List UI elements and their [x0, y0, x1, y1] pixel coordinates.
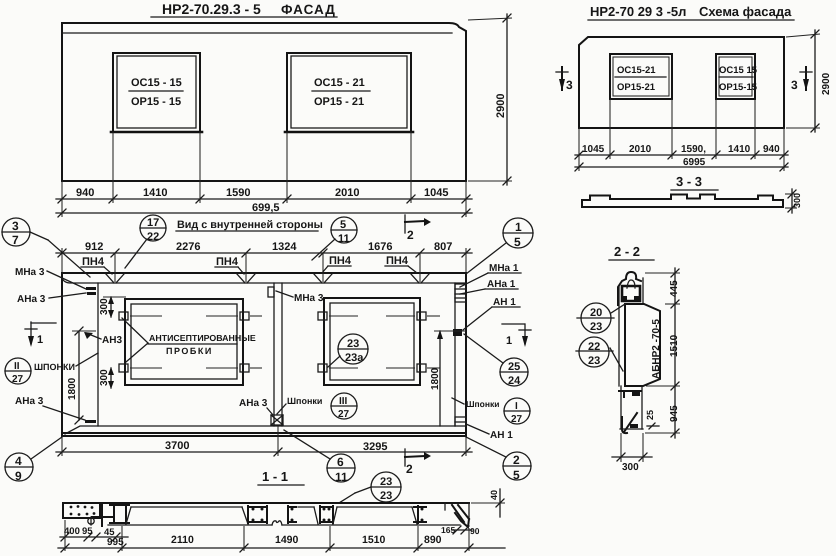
svg-text:Вид с внутренней стороны: Вид с внутренней стороны	[177, 219, 323, 231]
svg-text:27: 27	[338, 409, 350, 420]
svg-text:5: 5	[514, 235, 521, 249]
svg-text:АБНР2 -70-5: АБНР2 -70-5	[651, 319, 662, 379]
svg-text:МНа 3: МНа 3	[294, 293, 324, 304]
svg-text:2010: 2010	[629, 144, 652, 155]
svg-text:II: II	[14, 361, 20, 372]
svg-text:I: I	[515, 401, 518, 412]
svg-text:ПН4: ПН4	[82, 256, 105, 268]
svg-text:2276: 2276	[176, 241, 200, 253]
svg-text:300: 300	[792, 193, 802, 208]
svg-text:995: 995	[107, 537, 124, 548]
svg-text:5: 5	[513, 468, 520, 482]
svg-text:1510: 1510	[669, 334, 680, 357]
svg-text:ОС15 - 15: ОС15 - 15	[131, 77, 182, 89]
svg-text:23: 23	[347, 338, 359, 350]
svg-text:300: 300	[99, 369, 110, 386]
svg-text:ОС15-21: ОС15-21	[617, 65, 656, 76]
svg-text:22: 22	[588, 341, 600, 353]
svg-text:1: 1	[506, 335, 512, 347]
svg-text:III: III	[339, 396, 348, 407]
svg-text:27: 27	[511, 414, 523, 425]
svg-text:20: 20	[590, 307, 602, 319]
svg-text:1: 1	[515, 220, 522, 234]
svg-text:1: 1	[37, 334, 43, 346]
svg-text:3295: 3295	[363, 441, 387, 453]
svg-text:2 - 2: 2 - 2	[614, 244, 640, 259]
svg-text:1800: 1800	[430, 367, 441, 390]
svg-text:300: 300	[99, 298, 110, 315]
svg-text:23: 23	[380, 490, 392, 502]
svg-text:НР2-70 29 3 -5л: НР2-70 29 3 -5л	[590, 4, 686, 19]
svg-text:17: 17	[147, 217, 159, 229]
svg-text:2900: 2900	[821, 72, 832, 95]
svg-text:9: 9	[15, 469, 22, 483]
svg-text:11: 11	[335, 470, 348, 484]
svg-text:22: 22	[147, 231, 159, 243]
svg-text:90: 90	[470, 526, 480, 536]
svg-text:ШПОНКИ: ШПОНКИ	[34, 362, 75, 372]
svg-text:890: 890	[424, 534, 442, 546]
svg-text:1490: 1490	[275, 534, 299, 546]
svg-text:400: 400	[64, 526, 80, 537]
svg-text:ПН4: ПН4	[216, 256, 239, 268]
svg-text:25: 25	[508, 361, 520, 373]
svg-text:940: 940	[76, 187, 94, 199]
svg-text:24: 24	[508, 375, 521, 387]
svg-text:1800: 1800	[67, 377, 78, 400]
svg-text:АН3: АН3	[102, 335, 122, 346]
svg-text:1590: 1590	[226, 187, 250, 199]
svg-text:Шпонки: Шпонки	[466, 399, 499, 409]
svg-text:АН 1: АН 1	[490, 430, 513, 441]
svg-text:ОС15 15: ОС15 15	[719, 65, 758, 76]
svg-text:ОР15 - 15: ОР15 - 15	[131, 96, 181, 108]
svg-text:Шпонки: Шпонки	[287, 396, 322, 406]
svg-text:АНа 3: АНа 3	[15, 396, 44, 407]
svg-text:3: 3	[791, 78, 798, 92]
svg-text:АНа 3: АНа 3	[17, 294, 46, 305]
svg-text:25: 25	[645, 410, 655, 420]
svg-text:ПН4: ПН4	[329, 255, 352, 267]
svg-text:1045: 1045	[582, 144, 605, 155]
svg-text:2110: 2110	[171, 534, 194, 546]
svg-text:2900: 2900	[495, 94, 507, 118]
svg-text:АНа 3: АНа 3	[239, 398, 268, 409]
svg-text:95: 95	[82, 526, 93, 537]
svg-text:ОР15-21: ОР15-21	[617, 82, 656, 93]
svg-text:2010: 2010	[335, 187, 359, 199]
svg-text:11: 11	[338, 233, 350, 245]
svg-text:1676: 1676	[368, 241, 392, 253]
svg-text:ПН4: ПН4	[386, 255, 409, 267]
svg-text:7: 7	[12, 233, 19, 247]
svg-text:2: 2	[513, 453, 520, 467]
svg-text:3: 3	[12, 219, 19, 233]
svg-text:3700: 3700	[165, 440, 189, 452]
svg-text:ПРОБКИ: ПРОБКИ	[166, 346, 213, 356]
svg-text:ФАСАД: ФАСАД	[281, 2, 336, 17]
svg-text:40: 40	[489, 490, 499, 500]
svg-text:940: 940	[763, 144, 780, 155]
svg-text:27: 27	[12, 374, 24, 385]
svg-text:МНа 3: МНа 3	[15, 267, 45, 278]
svg-text:6: 6	[337, 455, 344, 469]
svg-text:ОР15 - 21: ОР15 - 21	[314, 96, 364, 108]
svg-text:699,5: 699,5	[252, 202, 280, 214]
svg-text:23: 23	[590, 321, 602, 333]
svg-text:1324: 1324	[272, 241, 297, 253]
svg-text:4: 4	[15, 454, 22, 468]
svg-text:945: 945	[669, 405, 680, 422]
svg-text:1590,: 1590,	[681, 144, 706, 155]
svg-text:23: 23	[380, 476, 392, 488]
svg-text:1510: 1510	[362, 534, 386, 546]
svg-text:3: 3	[566, 78, 573, 92]
svg-text:3 - 3: 3 - 3	[676, 174, 702, 189]
svg-text:НР2-70.29.3 - 5: НР2-70.29.3 - 5	[162, 1, 261, 17]
svg-text:2: 2	[407, 228, 414, 242]
svg-text:5: 5	[340, 219, 346, 231]
svg-text:2: 2	[406, 462, 413, 476]
svg-text:23а: 23а	[345, 352, 364, 364]
svg-text:300: 300	[622, 462, 639, 473]
svg-text:912: 912	[85, 241, 103, 253]
svg-text:АНТИСЕПТИРОВАННЫЕ: АНТИСЕПТИРОВАННЫЕ	[149, 333, 256, 343]
svg-text:1410: 1410	[143, 187, 167, 199]
svg-text:445: 445	[669, 280, 680, 297]
svg-text:1410: 1410	[728, 144, 751, 155]
svg-text:1045: 1045	[424, 187, 448, 199]
svg-text:6995: 6995	[683, 157, 706, 168]
svg-text:Схема фасада: Схема фасада	[699, 4, 792, 19]
svg-text:ОС15 - 21: ОС15 - 21	[314, 77, 365, 89]
svg-text:1 - 1: 1 - 1	[262, 469, 288, 484]
svg-text:ОР15-15: ОР15-15	[719, 82, 758, 93]
svg-text:23: 23	[588, 355, 600, 367]
svg-text:807: 807	[434, 241, 452, 253]
